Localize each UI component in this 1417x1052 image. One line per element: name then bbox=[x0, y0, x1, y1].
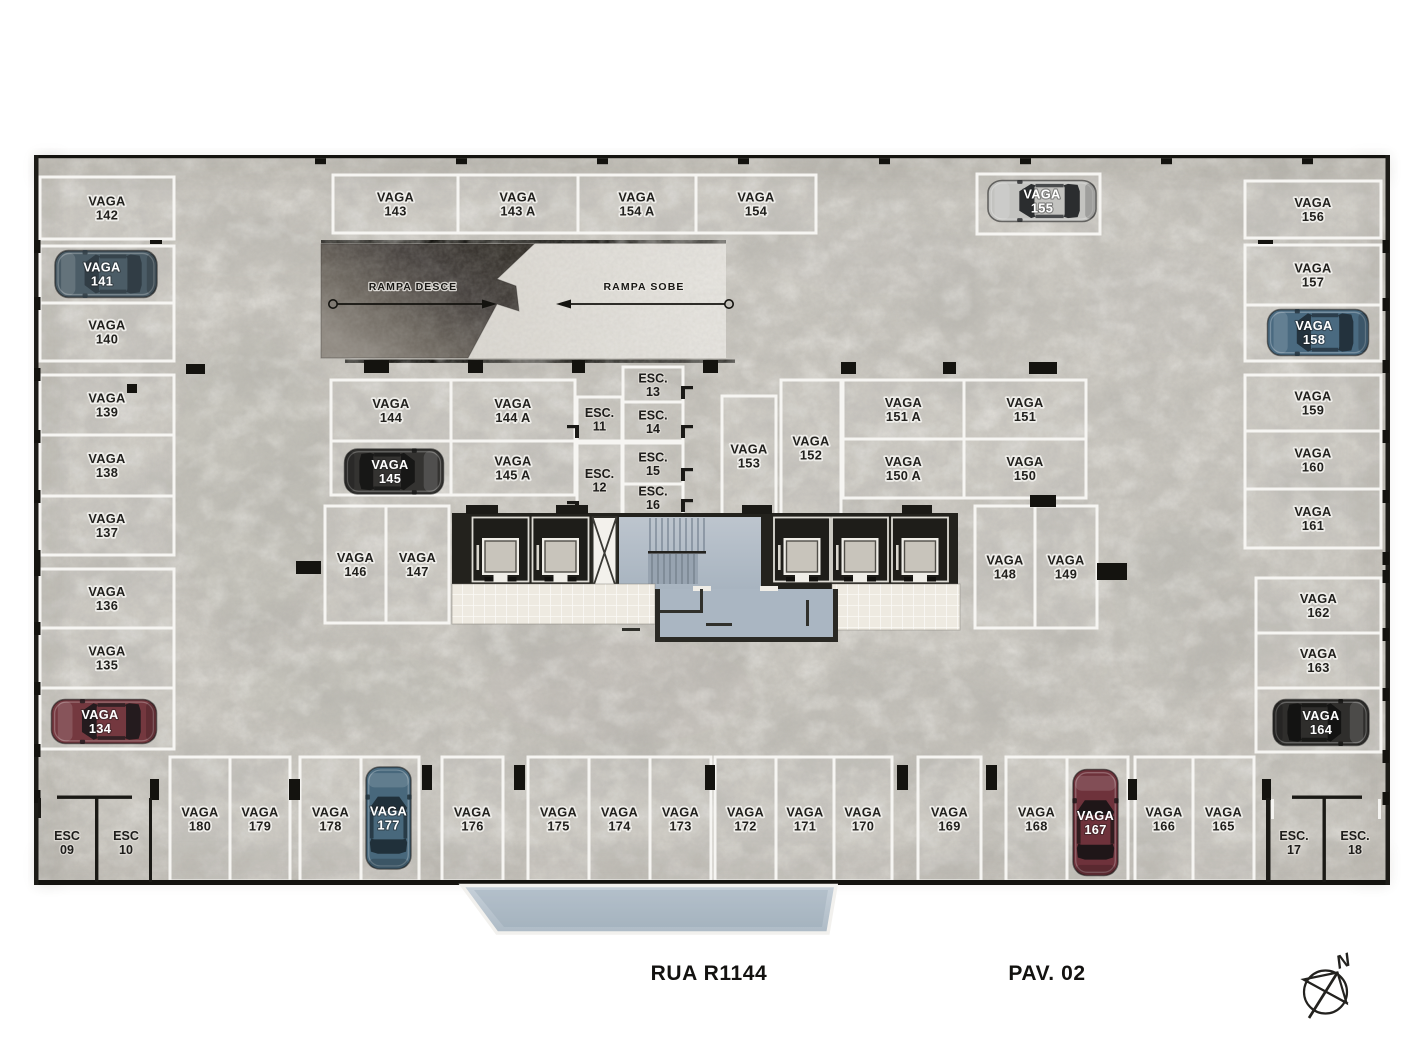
svg-text:VAGA: VAGA bbox=[181, 805, 218, 820]
svg-text:VAGA: VAGA bbox=[540, 805, 577, 820]
svg-text:180: 180 bbox=[189, 819, 211, 834]
svg-text:ESC: ESC bbox=[54, 829, 80, 843]
svg-text:162: 162 bbox=[1307, 605, 1329, 620]
svg-text:VAGA: VAGA bbox=[312, 805, 349, 820]
svg-text:VAGA: VAGA bbox=[730, 442, 767, 457]
svg-text:VAGA: VAGA bbox=[1047, 553, 1084, 568]
svg-text:157: 157 bbox=[1302, 275, 1324, 290]
svg-text:RUA R1144: RUA R1144 bbox=[651, 962, 768, 985]
svg-text:VAGA: VAGA bbox=[792, 434, 829, 449]
svg-text:09: 09 bbox=[60, 843, 74, 857]
svg-text:142: 142 bbox=[96, 208, 118, 223]
svg-text:VAGA: VAGA bbox=[399, 550, 436, 565]
svg-text:VAGA: VAGA bbox=[337, 550, 374, 565]
svg-text:VAGA: VAGA bbox=[1018, 805, 1055, 820]
svg-text:18: 18 bbox=[1348, 843, 1362, 857]
svg-text:VAGA: VAGA bbox=[370, 804, 407, 819]
svg-text:VAGA: VAGA bbox=[618, 190, 655, 205]
svg-text:160: 160 bbox=[1302, 460, 1324, 475]
svg-text:ESC.: ESC. bbox=[638, 485, 667, 499]
svg-text:151: 151 bbox=[1014, 409, 1036, 424]
svg-text:ESC: ESC bbox=[113, 829, 139, 843]
svg-text:VAGA: VAGA bbox=[83, 260, 120, 275]
svg-text:176: 176 bbox=[461, 819, 483, 834]
svg-text:165: 165 bbox=[1212, 819, 1234, 834]
svg-text:143: 143 bbox=[384, 204, 406, 219]
svg-text:16: 16 bbox=[646, 498, 660, 512]
svg-text:143 A: 143 A bbox=[500, 204, 535, 219]
svg-text:170: 170 bbox=[852, 819, 874, 834]
svg-text:137: 137 bbox=[96, 525, 118, 540]
svg-text:VAGA: VAGA bbox=[372, 396, 409, 411]
svg-text:VAGA: VAGA bbox=[88, 584, 125, 599]
svg-text:VAGA: VAGA bbox=[1294, 195, 1331, 210]
svg-text:VAGA: VAGA bbox=[1205, 805, 1242, 820]
svg-text:RAMPA SOBE: RAMPA SOBE bbox=[603, 281, 684, 293]
svg-text:VAGA: VAGA bbox=[88, 451, 125, 466]
svg-text:154: 154 bbox=[745, 204, 768, 219]
svg-text:VAGA: VAGA bbox=[662, 805, 699, 820]
svg-text:17: 17 bbox=[1287, 843, 1301, 857]
svg-text:VAGA: VAGA bbox=[1006, 395, 1043, 410]
svg-text:VAGA: VAGA bbox=[494, 454, 531, 469]
svg-text:161: 161 bbox=[1302, 518, 1324, 533]
svg-text:147: 147 bbox=[406, 564, 428, 579]
svg-text:166: 166 bbox=[1153, 819, 1175, 834]
svg-text:144 A: 144 A bbox=[495, 410, 530, 425]
svg-text:150 A: 150 A bbox=[886, 468, 921, 483]
svg-text:VAGA: VAGA bbox=[1294, 504, 1331, 519]
svg-text:13: 13 bbox=[646, 385, 660, 399]
svg-text:154 A: 154 A bbox=[619, 204, 654, 219]
svg-text:ESC.: ESC. bbox=[1340, 829, 1369, 843]
svg-text:11: 11 bbox=[593, 420, 606, 434]
svg-text:172: 172 bbox=[734, 819, 756, 834]
svg-text:VAGA: VAGA bbox=[454, 805, 491, 820]
svg-text:169: 169 bbox=[938, 819, 960, 834]
svg-text:15: 15 bbox=[646, 464, 660, 478]
svg-text:VAGA: VAGA bbox=[377, 190, 414, 205]
svg-text:168: 168 bbox=[1025, 819, 1047, 834]
svg-text:VAGA: VAGA bbox=[1294, 446, 1331, 461]
svg-text:173: 173 bbox=[669, 819, 691, 834]
svg-text:171: 171 bbox=[794, 819, 816, 834]
svg-text:VAGA: VAGA bbox=[1302, 708, 1339, 723]
svg-text:148: 148 bbox=[994, 567, 1016, 582]
svg-text:159: 159 bbox=[1302, 403, 1324, 418]
svg-text:ESC.: ESC. bbox=[638, 409, 667, 423]
svg-text:VAGA: VAGA bbox=[1295, 318, 1332, 333]
svg-text:155: 155 bbox=[1031, 201, 1053, 216]
svg-text:VAGA: VAGA bbox=[885, 395, 922, 410]
svg-text:VAGA: VAGA bbox=[1294, 389, 1331, 404]
svg-text:156: 156 bbox=[1302, 209, 1324, 224]
svg-text:12: 12 bbox=[593, 481, 607, 495]
svg-text:135: 135 bbox=[96, 658, 118, 673]
svg-text:VAGA: VAGA bbox=[494, 396, 531, 411]
svg-text:134: 134 bbox=[89, 721, 112, 736]
svg-text:144: 144 bbox=[380, 410, 403, 425]
svg-text:177: 177 bbox=[377, 818, 399, 833]
svg-text:163: 163 bbox=[1307, 660, 1329, 675]
svg-text:VAGA: VAGA bbox=[786, 805, 823, 820]
svg-text:RAMPA DESCE: RAMPA DESCE bbox=[369, 281, 458, 293]
svg-text:140: 140 bbox=[96, 332, 118, 347]
svg-text:141: 141 bbox=[91, 274, 113, 289]
svg-text:PAV. 02: PAV. 02 bbox=[1008, 962, 1085, 985]
svg-text:VAGA: VAGA bbox=[1145, 805, 1182, 820]
svg-text:178: 178 bbox=[319, 819, 341, 834]
svg-text:VAGA: VAGA bbox=[88, 318, 125, 333]
svg-text:150: 150 bbox=[1014, 468, 1036, 483]
svg-text:VAGA: VAGA bbox=[1077, 808, 1114, 823]
svg-text:14: 14 bbox=[646, 422, 660, 436]
svg-text:VAGA: VAGA bbox=[88, 391, 125, 406]
svg-text:ESC.: ESC. bbox=[585, 406, 614, 420]
svg-text:VAGA: VAGA bbox=[88, 194, 125, 209]
svg-text:ESC.: ESC. bbox=[638, 451, 667, 465]
svg-text:VAGA: VAGA bbox=[986, 553, 1023, 568]
svg-text:136: 136 bbox=[96, 598, 118, 613]
svg-text:ESC.: ESC. bbox=[1279, 829, 1308, 843]
svg-text:VAGA: VAGA bbox=[1294, 261, 1331, 276]
svg-text:VAGA: VAGA bbox=[1300, 591, 1337, 606]
svg-text:VAGA: VAGA bbox=[371, 457, 408, 472]
svg-text:164: 164 bbox=[1310, 722, 1333, 737]
svg-text:VAGA: VAGA bbox=[885, 454, 922, 469]
svg-text:179: 179 bbox=[249, 819, 271, 834]
svg-text:145: 145 bbox=[379, 471, 401, 486]
svg-text:151 A: 151 A bbox=[886, 409, 921, 424]
svg-text:167: 167 bbox=[1084, 822, 1106, 837]
svg-text:152: 152 bbox=[800, 448, 822, 463]
svg-text:VAGA: VAGA bbox=[1006, 454, 1043, 469]
svg-text:ESC.: ESC. bbox=[585, 467, 614, 481]
svg-text:138: 138 bbox=[96, 465, 118, 480]
svg-text:VAGA: VAGA bbox=[88, 511, 125, 526]
svg-text:VAGA: VAGA bbox=[1023, 187, 1060, 202]
svg-text:174: 174 bbox=[608, 819, 631, 834]
svg-text:10: 10 bbox=[119, 843, 133, 857]
svg-text:VAGA: VAGA bbox=[737, 190, 774, 205]
svg-text:VAGA: VAGA bbox=[81, 707, 118, 722]
svg-text:149: 149 bbox=[1055, 567, 1077, 582]
svg-text:VAGA: VAGA bbox=[1300, 646, 1337, 661]
svg-text:VAGA: VAGA bbox=[241, 805, 278, 820]
svg-text:153: 153 bbox=[738, 456, 760, 471]
svg-text:N: N bbox=[1334, 949, 1355, 974]
svg-text:VAGA: VAGA bbox=[601, 805, 638, 820]
svg-text:VAGA: VAGA bbox=[499, 190, 536, 205]
svg-text:139: 139 bbox=[96, 405, 118, 420]
svg-text:146: 146 bbox=[344, 564, 366, 579]
svg-text:158: 158 bbox=[1303, 332, 1325, 347]
svg-text:175: 175 bbox=[547, 819, 569, 834]
svg-text:VAGA: VAGA bbox=[727, 805, 764, 820]
svg-text:ESC.: ESC. bbox=[638, 372, 667, 386]
svg-text:145 A: 145 A bbox=[495, 468, 530, 483]
svg-text:VAGA: VAGA bbox=[931, 805, 968, 820]
svg-text:VAGA: VAGA bbox=[88, 644, 125, 659]
svg-text:VAGA: VAGA bbox=[844, 805, 881, 820]
